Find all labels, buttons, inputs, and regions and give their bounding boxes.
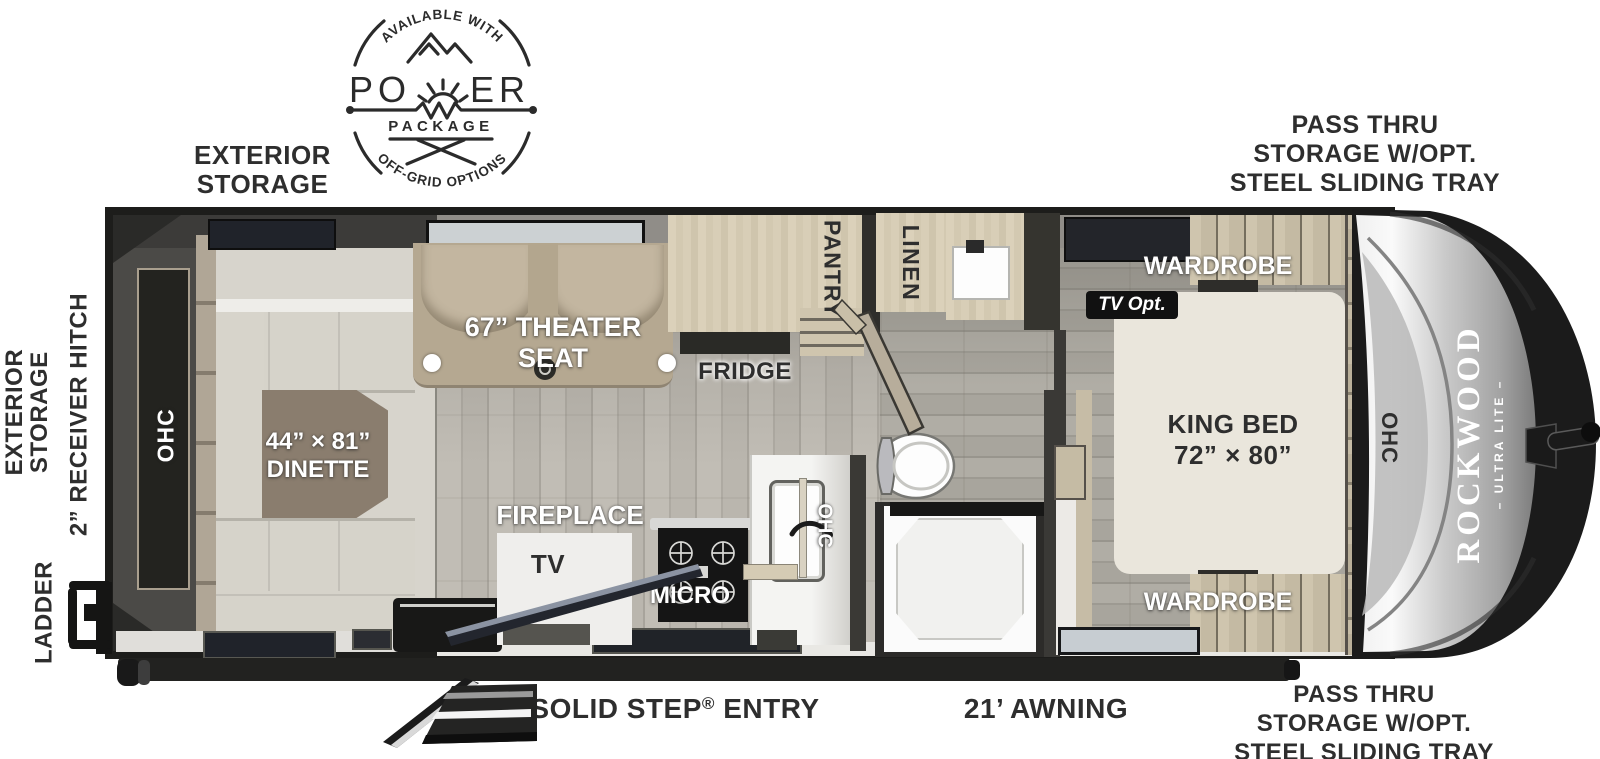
svg-text:PO: PO: [349, 69, 411, 110]
svg-text:AVAILABLE WITH: AVAILABLE WITH: [378, 7, 506, 46]
svg-text:PACKAGE: PACKAGE: [388, 118, 493, 135]
svg-text:ROCKWOOD: ROCKWOOD: [1451, 324, 1487, 563]
svg-text:ER: ER: [470, 69, 530, 110]
svg-text:– ULTRA LITE –: – ULTRA LITE –: [1492, 379, 1506, 510]
svg-text:OFF-GRID OPTIONS: OFF-GRID OPTIONS: [375, 150, 510, 190]
svg-text:OHC: OHC: [1377, 412, 1402, 464]
